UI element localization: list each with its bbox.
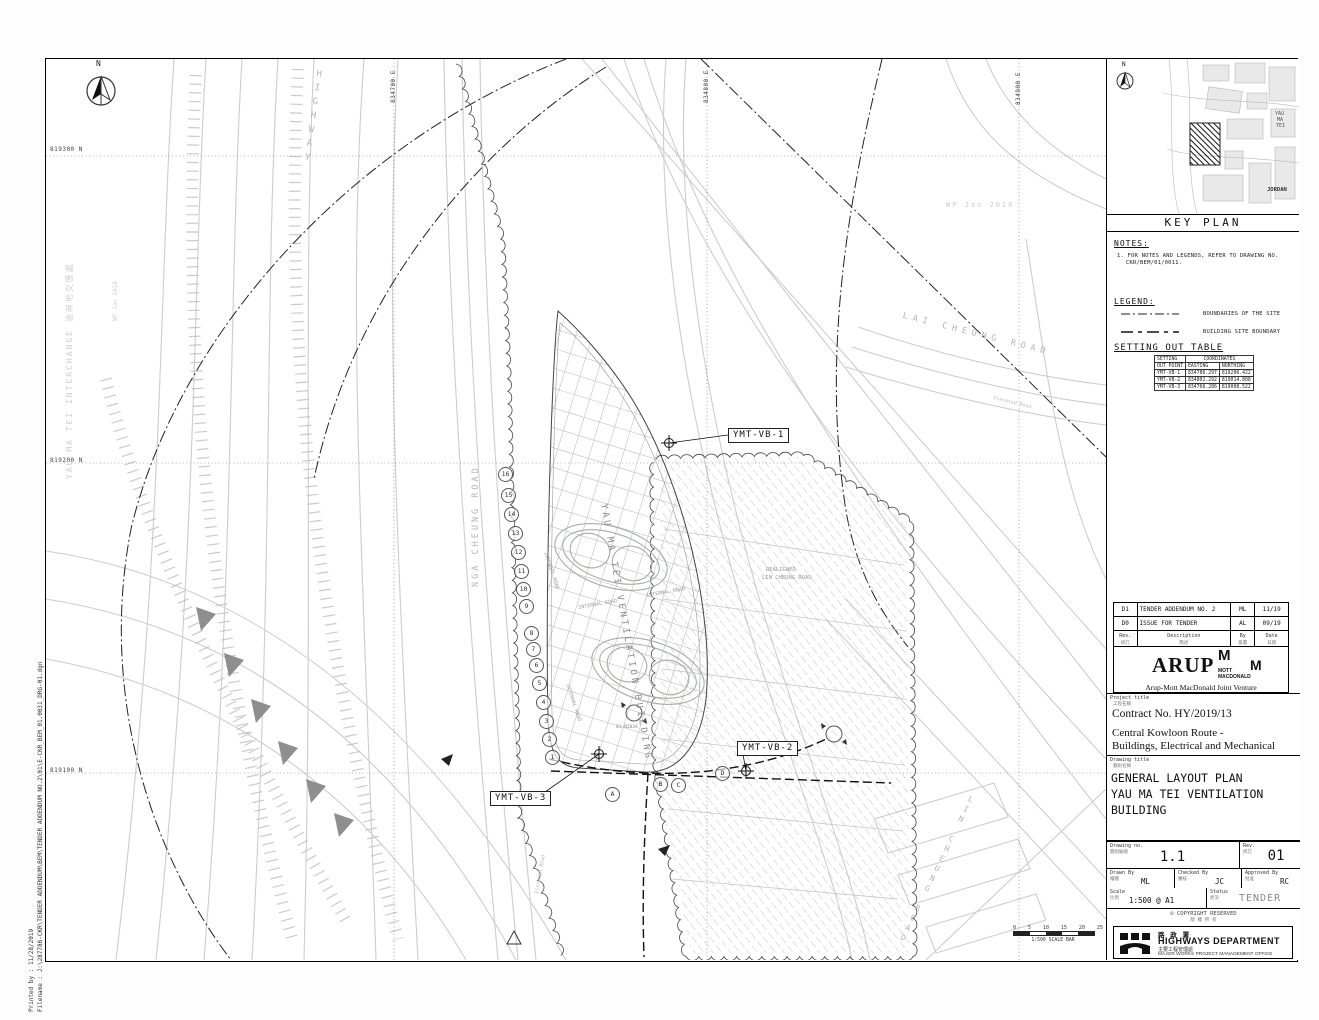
checked-by-label-cn: 審核 [1178, 876, 1187, 882]
misc-symbols [441, 754, 670, 944]
page-title-line3: BUILDING [1111, 803, 1166, 817]
checked-by-cell: Checked By 審核 JC [1174, 869, 1242, 889]
approved-by-cell: Approved By 批准 RC [1241, 869, 1300, 889]
drawn-by-label-cn: 繪圖 [1110, 876, 1119, 882]
notes-heading: NOTES: [1114, 239, 1149, 248]
north-arrow-icon [87, 76, 115, 105]
title-block-panel: N YAU MA TEI JORDAN KEY PLAN NOTES: 1. F… [1106, 59, 1299, 960]
filename-note: Filename : J:\287786-CKR\TENDER ADDENDUM… [37, 662, 44, 1012]
road-label-nga-cheung: NGA CHEUNG ROAD [471, 465, 481, 587]
label-wp-note-2: WP Jan 2018 [112, 281, 119, 321]
grid-bubble-8: 8 [524, 626, 539, 641]
roads-layer [46, 59, 1106, 960]
key-plan-label-tei: TEI [1276, 123, 1285, 129]
printed-by-note: Printed by : 11/28/2019 [28, 929, 35, 1012]
scale-tick: 25 m [1097, 925, 1106, 931]
callout-ymt-vb-1: YMT-VB-1 [728, 428, 789, 443]
grid-bubble-b: B [653, 777, 668, 792]
grid-bubble-11: 11 [514, 564, 529, 579]
approved-by-value: RC [1280, 877, 1289, 886]
table-row: D0 ISSUE FOR TENDER AL 09/19 [1114, 617, 1289, 631]
department-name: HIGHWAYS DEPARTMENT [1158, 936, 1280, 946]
so-header-coordinates: COORDINATES [1186, 356, 1254, 363]
scale-cell: Scale 比例 1:500 @ A1 [1107, 888, 1207, 909]
scale-label-cn: 比例 [1110, 895, 1119, 901]
gridline-label-east-3: 834900 E [1015, 72, 1022, 105]
project-title-box: Project title 工程名稱 Contract No. HY/2019/… [1107, 693, 1300, 756]
plan-linework [46, 59, 1106, 960]
drawing-title-label-cn: 圖則名稱 [1113, 763, 1131, 769]
section-marker-label: 01-N2034 [616, 725, 638, 730]
grid-bubble-9: 9 [519, 599, 534, 614]
macdonald-label: MACDONALD [1218, 674, 1251, 680]
parking-hatch-area [661, 457, 910, 953]
rev-value: 01 [1254, 848, 1298, 864]
grid-bubble-12: 12 [511, 545, 526, 560]
revision-header-row: Rev.修訂 Description簡述 By簽署 Date日期 [1114, 631, 1289, 648]
table-row: YMT-VB-3834766.286819008.522 [1155, 384, 1254, 391]
mott-macdonald-logo-m2: M [1250, 657, 1262, 673]
grid-bubble-2: 2 [542, 732, 557, 747]
checked-by-value: JC [1215, 877, 1224, 886]
legend-swatch-dashdot [1121, 311, 1179, 317]
scale-tick: 10 [1043, 925, 1049, 931]
grid-bubble-4: 4 [536, 695, 551, 710]
page-title-line2: YAU MA TEI VENTILATION [1111, 787, 1263, 801]
grid-bubble-15: 15 [501, 488, 516, 503]
drawn-by-value: ML [1141, 877, 1150, 886]
so-header-setting: SETTING [1155, 356, 1186, 363]
notes-item-line2: CKR/BEM/01/0011. [1126, 260, 1182, 266]
scale-bar-strip [1013, 931, 1095, 936]
scale-tick: 15 [1061, 925, 1067, 931]
grid-bubble-14: 14 [504, 507, 519, 522]
page-title: GENERAL LAYOUT PLAN [1111, 771, 1243, 785]
key-plan-title: KEY PLAN [1107, 214, 1299, 232]
gridline-label-north-1: 819300 N [50, 146, 83, 153]
copyright-text: COPYRIGHT RESERVED [1177, 911, 1237, 917]
revision-table: D1 TENDER ADDENDUM NO. 2 ML 11/19 D0 ISS… [1113, 602, 1289, 648]
label-realigned-2: LIN CHEUNG ROAD [762, 575, 812, 581]
grid-bubble-10: 10 [516, 582, 531, 597]
approved-by-label-cn: 批准 [1245, 876, 1254, 882]
legend-item-building-site: BUILDING SITE BOUNDARY [1121, 329, 1280, 335]
rev-label-cn: 修訂 [1243, 849, 1252, 855]
status-value: TENDER [1239, 893, 1281, 904]
grid-bubble-7: 7 [526, 642, 541, 657]
copyright-line: © COPYRIGHT RESERVED 版 權 所 有 [1107, 911, 1300, 923]
callout-ymt-vb-3: YMT-VB-3 [490, 791, 551, 806]
grid-bubble-a: A [605, 787, 620, 802]
drawn-by-cell: Drawn By 繪圖 ML [1107, 869, 1175, 889]
grid-bubble-5: 5 [532, 676, 547, 691]
drawing-title-box: Drawing title 圖則名稱 GENERAL LAYOUT PLAN Y… [1107, 756, 1300, 841]
consultant-logo-box: ARUP M M MOTT MACDONALD Arup-Mott MacDon… [1113, 646, 1289, 693]
rev-cell: Rev. 修訂 01 [1239, 841, 1300, 869]
so-header-easting: EASTING [1186, 363, 1220, 370]
scale-tick: 5 [1028, 925, 1031, 931]
project-name-line1: Central Kowloon Route - [1112, 727, 1224, 739]
department-box: 路 政 署 HIGHWAYS DEPARTMENT 主要工程管理處 MAJOR … [1113, 926, 1293, 959]
callout-ymt-vb-2: YMT-VB-2 [737, 741, 798, 756]
so-header-out-point: OUT POINT [1155, 363, 1186, 370]
project-name-line2: Buildings, Electrical and Mechanical [1112, 740, 1275, 752]
key-plan-map: N YAU MA TEI JORDAN [1107, 59, 1299, 214]
key-plan-north-arrow-icon [1117, 72, 1133, 89]
project-title-label-cn: 工程名稱 [1113, 701, 1131, 707]
drawing-no-value: 1.1 [1107, 849, 1238, 865]
setting-out-heading: SETTING OUT TABLE [1114, 343, 1223, 353]
grid-bubble-1: 1 [545, 750, 560, 765]
grid-bubble-c: C [671, 778, 686, 793]
highways-department-logo-icon [1118, 931, 1152, 956]
copyright-icon: © [1170, 911, 1173, 917]
label-realigned-1: REALIGNED [766, 567, 796, 573]
table-row: D1 TENDER ADDENDUM NO. 2 ML 11/19 [1114, 603, 1289, 617]
grid-bubble-d: D [715, 766, 730, 781]
drawing-frame: N 819300 N 819200 N 819100 N 834700 E 83… [45, 58, 1298, 962]
gridline-label-east-2: 834800 E [703, 70, 710, 103]
arup-logo: ARUP [1152, 653, 1214, 678]
grid-bubble-3: 3 [539, 714, 554, 729]
scale-tick: 0 [1013, 925, 1016, 931]
key-plan-site-marker [1190, 123, 1220, 165]
legend-item-label: BUILDING SITE BOUNDARY [1203, 329, 1280, 335]
setting-out-table: SETTING COORDINATES OUT POINT EASTING NO… [1154, 355, 1254, 391]
so-header-northing: NORTHING [1219, 363, 1253, 370]
scale-value: 1:500 @ A1 [1129, 896, 1174, 905]
status-label-cn: 狀況 [1210, 895, 1219, 901]
department-office: MAJOR WORKS PROJECT MANAGEMENT OFFICE [1158, 952, 1272, 957]
copyright-text-cn: 版 權 所 有 [1190, 918, 1216, 923]
joint-venture-label: Arup-Mott MacDonald Joint Venture [1114, 683, 1288, 692]
grid-bubble-16: 16 [498, 467, 513, 482]
mott-macdonald-logo-m1: M [1218, 647, 1231, 664]
drawing-sheet: { "sheet": { "printed_by_line": "Printed… [0, 0, 1319, 1020]
legend-item-boundaries: BOUNDARIES OF THE SITE [1121, 311, 1280, 317]
scale-tick: 20 [1079, 925, 1085, 931]
grid-bubble-13: 13 [508, 526, 523, 541]
scale-bar-label: 1:500 SCALE BAR [1013, 938, 1093, 943]
legend-heading: LEGEND: [1114, 297, 1155, 306]
table-row: YMT-VB-1834786.297819206.422 [1155, 370, 1254, 377]
gridline-label-north-3: 819100 N [50, 767, 83, 774]
status-cell: Status 狀況 TENDER [1206, 888, 1300, 909]
table-row: YMT-VB-2834802.292819014.808 [1155, 377, 1254, 384]
label-wp-note-1: WP Jan 2018 [946, 201, 1014, 209]
legend-item-label: BOUNDARIES OF THE SITE [1203, 311, 1280, 317]
scale-bar: 0 5 10 15 20 25 m 1:500 SCALE BAR [1013, 925, 1106, 943]
survey-gridlines [46, 59, 1106, 960]
key-plan-north-label: N [1122, 61, 1126, 68]
gridline-label-east-1: 834700 E [390, 70, 397, 103]
contract-no: Contract No. HY/2019/13 [1112, 708, 1232, 720]
key-plan-label-jordan: JORDAN [1267, 187, 1287, 193]
drawing-no-cell: Drawing no. 圖則編號 1.1 [1107, 841, 1240, 869]
road-label-interchange: YAU MA TEI INTERCHANGE 油麻地交匯處 [64, 262, 75, 479]
notes-item-line1: 1. FOR NOTES AND LEGENDS, REFER TO DRAWI… [1117, 253, 1279, 259]
grid-bubble-6: 6 [529, 658, 544, 673]
north-label: N [96, 59, 101, 68]
plan-map: N 819300 N 819200 N 819100 N 834700 E 83… [46, 59, 1106, 960]
legend-swatch-dash [1121, 329, 1179, 335]
slope-hatch-layer [106, 69, 398, 939]
